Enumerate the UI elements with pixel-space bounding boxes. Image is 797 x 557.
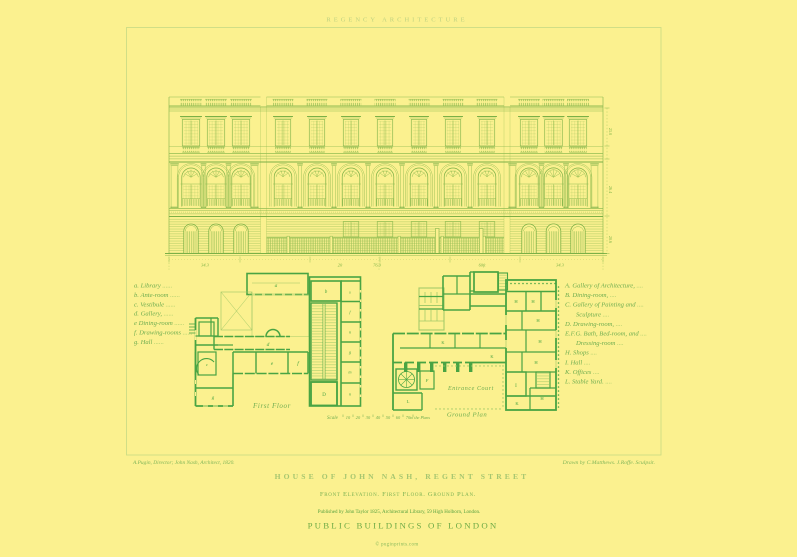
svg-text:HOUSE OF JOHN NASH, REGENT STR: HOUSE OF JOHN NASH, REGENT STREET bbox=[275, 472, 530, 481]
svg-text:c. Vestibule ......: c. Vestibule ...... bbox=[134, 301, 176, 308]
svg-text:Ground Plan: Ground Plan bbox=[447, 412, 488, 419]
svg-text:B. Dining-room, ....: B. Dining-room, .... bbox=[565, 292, 617, 299]
svg-text:C. Gallery of Painting and ...: C. Gallery of Painting and .... bbox=[565, 302, 644, 309]
svg-text:A.Pugin, Director; John Nash,: A.Pugin, Director; John Nash, Architect,… bbox=[132, 460, 235, 466]
svg-text:26.4: 26.4 bbox=[608, 186, 613, 193]
svg-text:E.F.G. Bath, Bed-room, and ...: E.F.G. Bath, Bed-room, and .... bbox=[564, 331, 647, 338]
svg-text:f. Drawing-rooms ......: f. Drawing-rooms ...... bbox=[134, 330, 193, 337]
svg-text:L: L bbox=[407, 399, 410, 404]
svg-text:F: F bbox=[425, 378, 429, 383]
svg-text:60ft: 60ft bbox=[479, 263, 487, 268]
svg-text:b. Ante-room ......: b. Ante-room ...... bbox=[134, 292, 180, 299]
svg-text:© puginprints.com: © puginprints.com bbox=[376, 542, 419, 548]
svg-text:76.0: 76.0 bbox=[373, 263, 381, 268]
svg-text:25.0: 25.0 bbox=[608, 128, 613, 135]
svg-text:c: c bbox=[206, 362, 208, 367]
svg-text:Scale: Scale bbox=[327, 416, 339, 421]
svg-text:a. Library ......: a. Library ...... bbox=[134, 283, 173, 290]
svg-text:34.3: 34.3 bbox=[556, 263, 564, 268]
svg-text:d. Gallery, ......: d. Gallery, ...... bbox=[134, 311, 174, 318]
svg-text:First Floor: First Floor bbox=[252, 402, 291, 410]
svg-text:e Dining-room ......: e Dining-room ...... bbox=[134, 320, 185, 327]
svg-text:Front Elevation. First Floor.: Front Elevation. First Floor. Ground Pla… bbox=[320, 491, 476, 498]
svg-text:A. Gallery of Architecture, ..: A. Gallery of Architecture, .... bbox=[564, 283, 643, 290]
svg-text:K. Offices ....: K. Offices .... bbox=[564, 369, 600, 376]
svg-text:D: D bbox=[322, 393, 326, 398]
svg-text:Dressing-room ....: Dressing-room .... bbox=[575, 340, 624, 347]
svg-text:I. Hall ....: I. Hall .... bbox=[564, 359, 591, 366]
svg-text:PUBLIC BUILDINGS OF LONDON: PUBLIC BUILDINGS OF LONDON bbox=[308, 521, 499, 531]
svg-text:d: d bbox=[267, 342, 270, 348]
svg-text:REGENCY ARCHITECTURE: REGENCY ARCHITECTURE bbox=[326, 17, 467, 24]
svg-text:g. Hall ......: g. Hall ...... bbox=[134, 339, 164, 346]
svg-text:Published by John Taylor 1825,: Published by John Taylor 1825, Architect… bbox=[318, 510, 481, 515]
svg-text:20.6: 20.6 bbox=[608, 236, 613, 243]
svg-text:Drawn by C.Matthews. J.Roffe.: Drawn by C.Matthews. J.Roffe. Sculpsit. bbox=[562, 459, 655, 466]
svg-text:D. Drawing-room, ....: D. Drawing-room, .... bbox=[564, 321, 623, 328]
svg-text:m: m bbox=[348, 370, 351, 375]
svg-text:a: a bbox=[275, 283, 278, 289]
svg-text:H. Shops ....: H. Shops .... bbox=[564, 350, 597, 357]
svg-text:34.3: 34.3 bbox=[201, 263, 209, 268]
svg-text:L. Stable Yard. ....: L. Stable Yard. .... bbox=[564, 379, 612, 386]
svg-text:Sculpture ....: Sculpture .... bbox=[576, 311, 610, 318]
svg-text:s: s bbox=[349, 290, 351, 295]
svg-text:Entrance Court: Entrance Court bbox=[447, 386, 494, 392]
